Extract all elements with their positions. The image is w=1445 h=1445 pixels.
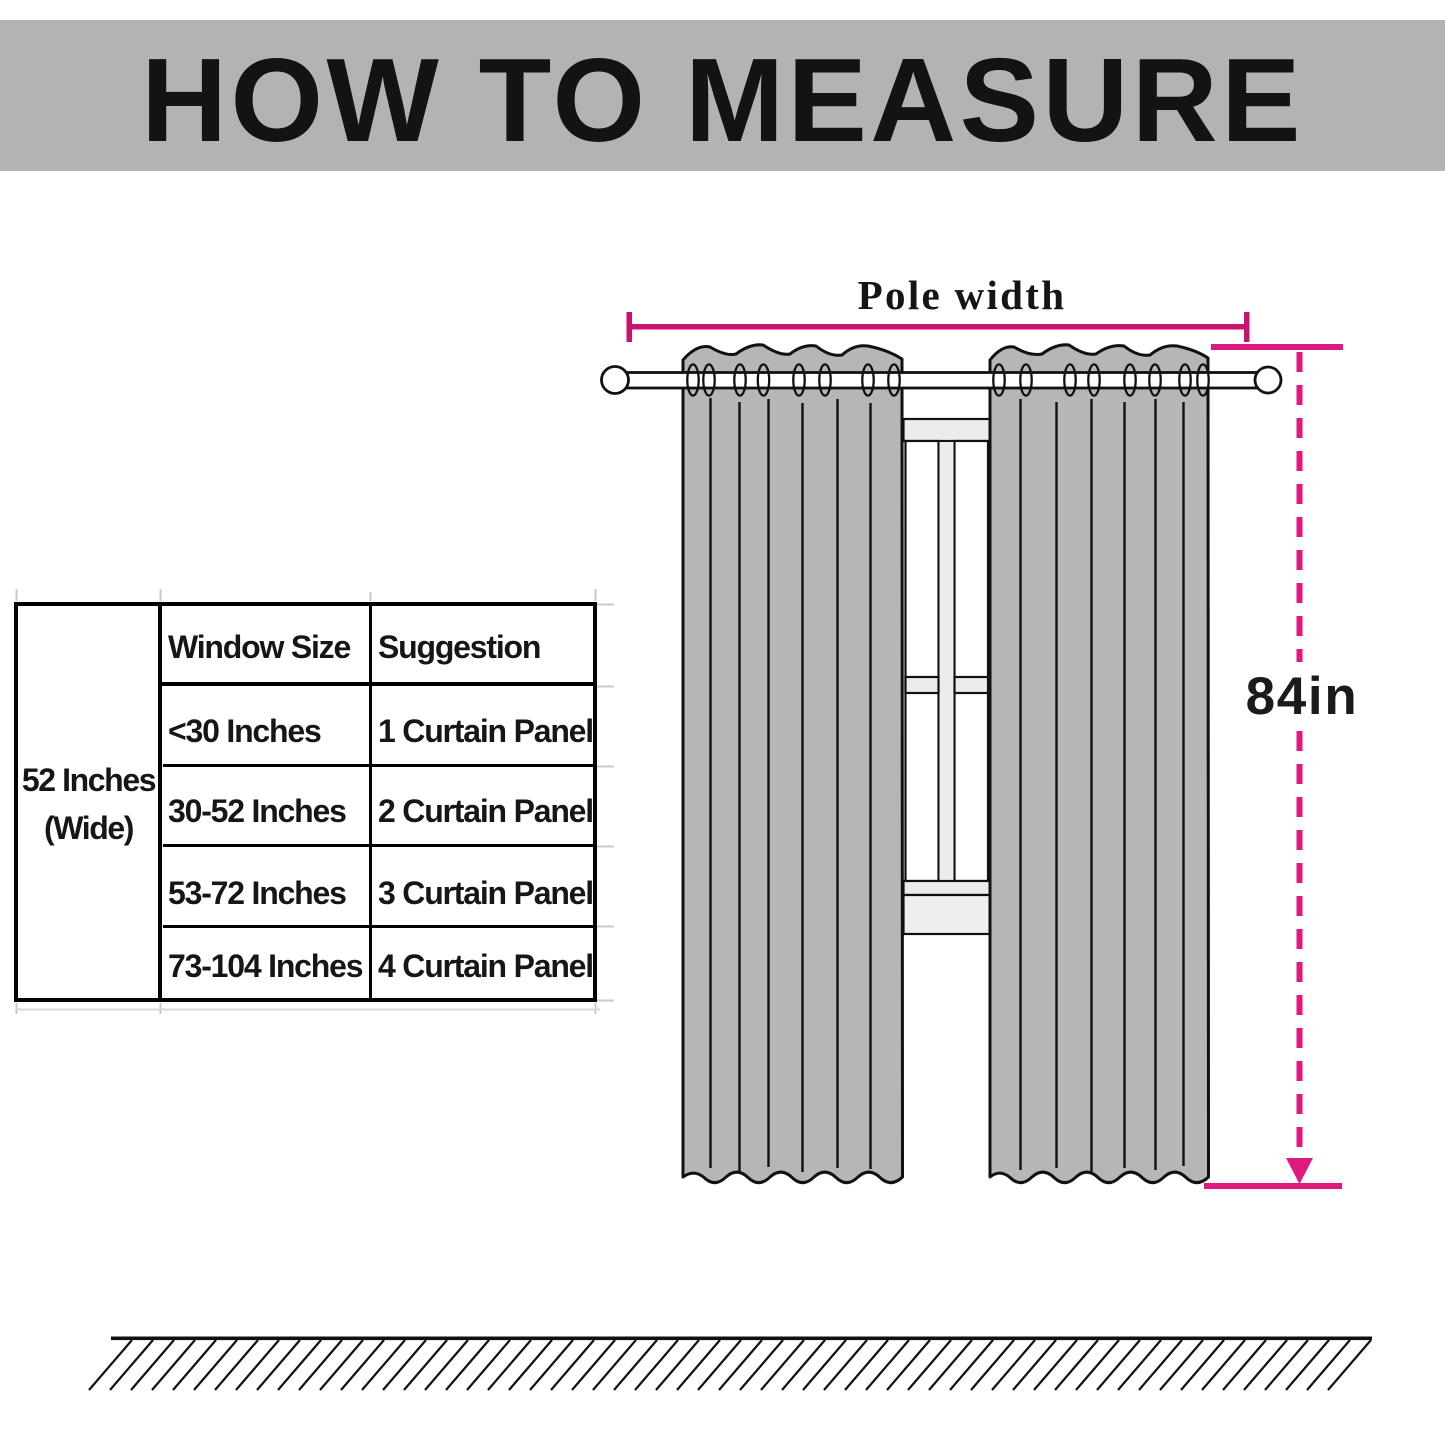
svg-text:Pole width: Pole width (858, 272, 1067, 318)
svg-text:84in: 84in (1246, 667, 1359, 726)
